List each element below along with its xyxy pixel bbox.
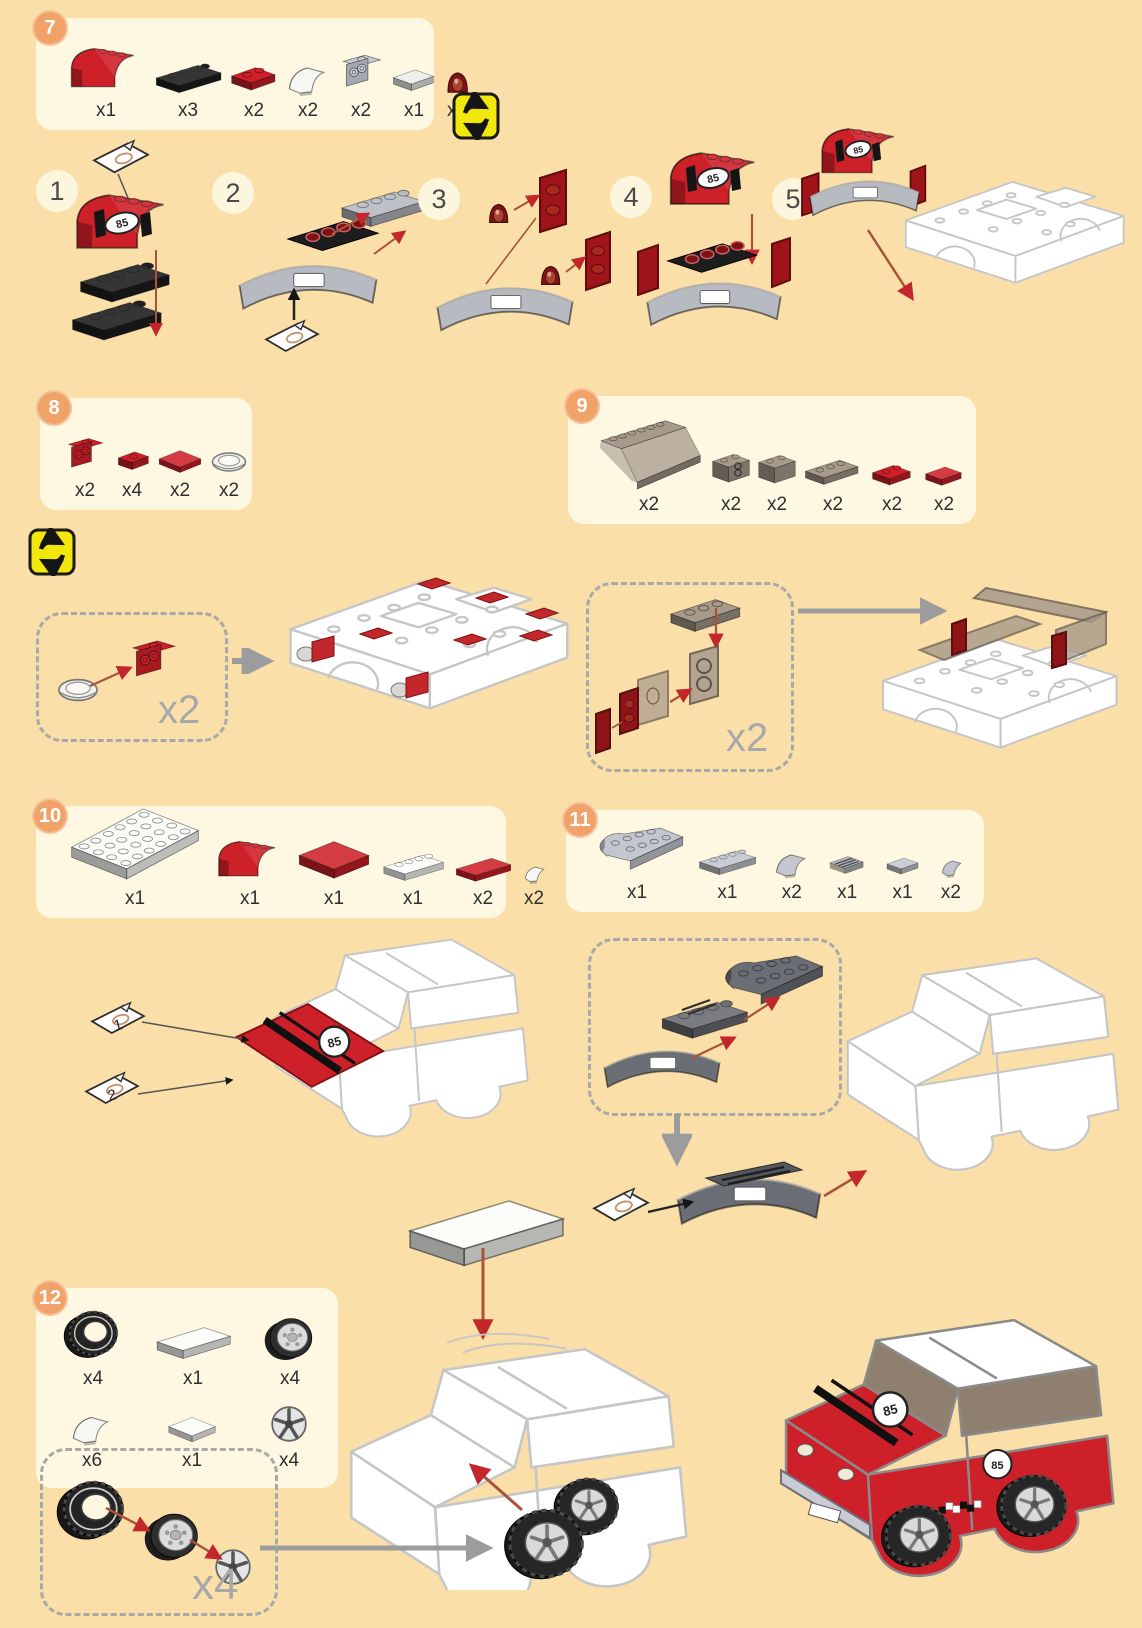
substep-1-figure: 85 [58, 138, 238, 373]
step8-multiplier: x2 [158, 688, 200, 733]
step10-parts-panel: 10 x1 x1 x1 x1 x2 x2 [36, 806, 506, 918]
part-white-4x6-plate: x1 [60, 797, 210, 910]
red-curved-brick-icon [62, 39, 150, 97]
smoke-1x2-brick-icon [754, 451, 800, 491]
part-red-bracket: x2 [60, 433, 110, 502]
part-clear-dish: x2 [206, 447, 252, 502]
step11-number-badge: 11 [562, 802, 598, 838]
smoke-1x3-plate-icon [800, 453, 866, 491]
gray-1x2-tile-icon [880, 851, 926, 879]
gray-corner-slope-icon [934, 853, 968, 879]
part-red-1x2-plate: x2 [226, 58, 282, 122]
part-white-2x4-tile: x1 [150, 1319, 236, 1390]
part-smoke-brick-headlight: x2 [708, 449, 754, 516]
white-corner-slope-icon [518, 859, 550, 885]
headlight [838, 1468, 854, 1480]
part-red-1x4-tile: x2 [448, 853, 518, 910]
step8-chassis-figure [268, 538, 590, 774]
step9-multiplier: x2 [726, 716, 768, 761]
front-wheel [882, 1506, 951, 1567]
part-red-4x4-tile: x1 [290, 833, 378, 910]
red-bracket-icon [60, 433, 110, 477]
red-1x2-vertical-plate [586, 232, 610, 290]
substep-5-figure: 85 [796, 118, 1142, 383]
white-2x2-tile-icon [163, 1411, 221, 1447]
part-black-1x4-plate: x3 [150, 59, 226, 122]
gray-1x4-plate-icon [694, 845, 760, 879]
part-gray-1x4-plate: x1 [694, 845, 760, 904]
step7-parts-panel: 7 x1 x3 x2 x2 x2 x1 x2 [36, 18, 434, 130]
white-1x4-plate-icon [378, 849, 448, 885]
substep-2-figure [232, 182, 432, 372]
rear-wheel [997, 1476, 1066, 1537]
part-red-1x1-plate: x4 [110, 443, 154, 502]
step8-number-badge: 8 [36, 390, 72, 426]
part-white-curved-slope: x2 [282, 56, 334, 122]
part-smoke-1x3-plate: x2 [800, 453, 866, 516]
red-1x2-vertical-plate [540, 170, 566, 232]
part-gray-corner-slope: x2 [934, 853, 968, 904]
part-gray-grille-tile: x1 [823, 849, 871, 904]
white-curved-slope-icon [282, 56, 334, 97]
step11-car-figure [770, 928, 1142, 1200]
part-red-2x2-tile: x2 [154, 445, 206, 502]
red-1x2-plate-icon [866, 457, 918, 491]
part-tire: x4 [60, 1305, 126, 1390]
part-gray-bracket: x2 [334, 49, 388, 122]
part-gray-curved-slope: x2 [769, 845, 815, 904]
rotate-icon [452, 92, 500, 140]
step8-parts-panel: 8 x2 x4 x2 x2 [40, 398, 252, 510]
part-gray-1x2-tile: x1 [880, 851, 926, 904]
gray-grille-tile-icon [823, 849, 871, 879]
step9-number-badge: 9 [564, 388, 600, 424]
red-2x2-tile-icon [154, 445, 206, 477]
instruction-page: 7 x1 x3 x2 x2 x2 x1 x2 1 85 2 3 4 85 5 [0, 0, 1142, 1628]
sticker-sheet-2: 2 [86, 1073, 232, 1105]
part-white-1x4-plate: x1 [378, 849, 448, 910]
red-1x2-plate-icon [226, 58, 282, 97]
step7-number-badge: 7 [32, 10, 68, 46]
red-1x2-tile-icon [918, 459, 970, 491]
svg-text:85: 85 [991, 1460, 1003, 1472]
clear-dish-icon [206, 447, 252, 477]
gray-bracket-icon [334, 49, 388, 97]
step9-parts-panel: 9 x2 x2 x2 x2 x2 x2 [568, 396, 976, 524]
step11-parts-panel: 11 x1 x1 x2 x1 x1 x2 [566, 810, 984, 912]
step10-car-figure: 85 1 2 [80, 922, 562, 1190]
part-white-1x2-tile: x1 [388, 61, 440, 122]
part-white-corner-slope: x2 [518, 859, 550, 910]
white-2x2-slope-icon [66, 1405, 118, 1447]
part-red-1x2-plate: x2 [866, 457, 918, 516]
red-curved-brick-icon [210, 833, 290, 885]
step9-car-figure [856, 552, 1142, 784]
white-4x6-plate-icon [60, 797, 210, 885]
smoke-1x2-brick-rings-icon [708, 449, 754, 491]
front-bumper-assembly: 85 [802, 129, 925, 216]
gray-curved-slope-icon [769, 845, 815, 879]
part-smoke-brick: x2 [754, 451, 800, 516]
front-wheel [505, 1510, 583, 1578]
black-1x4-plate-icon [150, 59, 226, 97]
chassis-line-art [906, 182, 1124, 283]
red-4x4-tile-icon [290, 833, 378, 885]
part-qty: x1 [96, 100, 116, 122]
gray-2x4-rounded-plate-icon [588, 825, 686, 879]
step12-number-badge: 12 [32, 1280, 68, 1316]
tire-icon [60, 1305, 126, 1365]
wheel-multiplier: x4 [192, 1560, 238, 1610]
part-red-curved-brick: x1 [62, 39, 150, 122]
wheel-attach-figure [250, 1448, 680, 1608]
part-smoke-windscreen: x2 [590, 414, 708, 516]
headlight [797, 1444, 813, 1456]
smoke-windscreen-icon [590, 414, 708, 491]
rotate-icon [28, 528, 76, 576]
part-red-1x2-tile: x2 [918, 459, 970, 516]
part-gray-2x4-rounded-plate: x1 [588, 825, 686, 904]
sticker-sheet-1: 1 [92, 1003, 248, 1040]
white-1x2-tile-icon [388, 61, 440, 97]
white-2x4-tile-icon [150, 1319, 236, 1365]
part-red-curved-brick: x1 [210, 833, 290, 910]
final-car-figure: 85 85 [692, 1272, 1142, 1624]
step10-number-badge: 10 [32, 798, 68, 834]
substep-4-figure: 85 [632, 140, 807, 350]
red-1x1-plate-icon [110, 443, 154, 477]
red-1x4-tile-icon [448, 853, 518, 885]
substep-3-figure [430, 162, 630, 362]
